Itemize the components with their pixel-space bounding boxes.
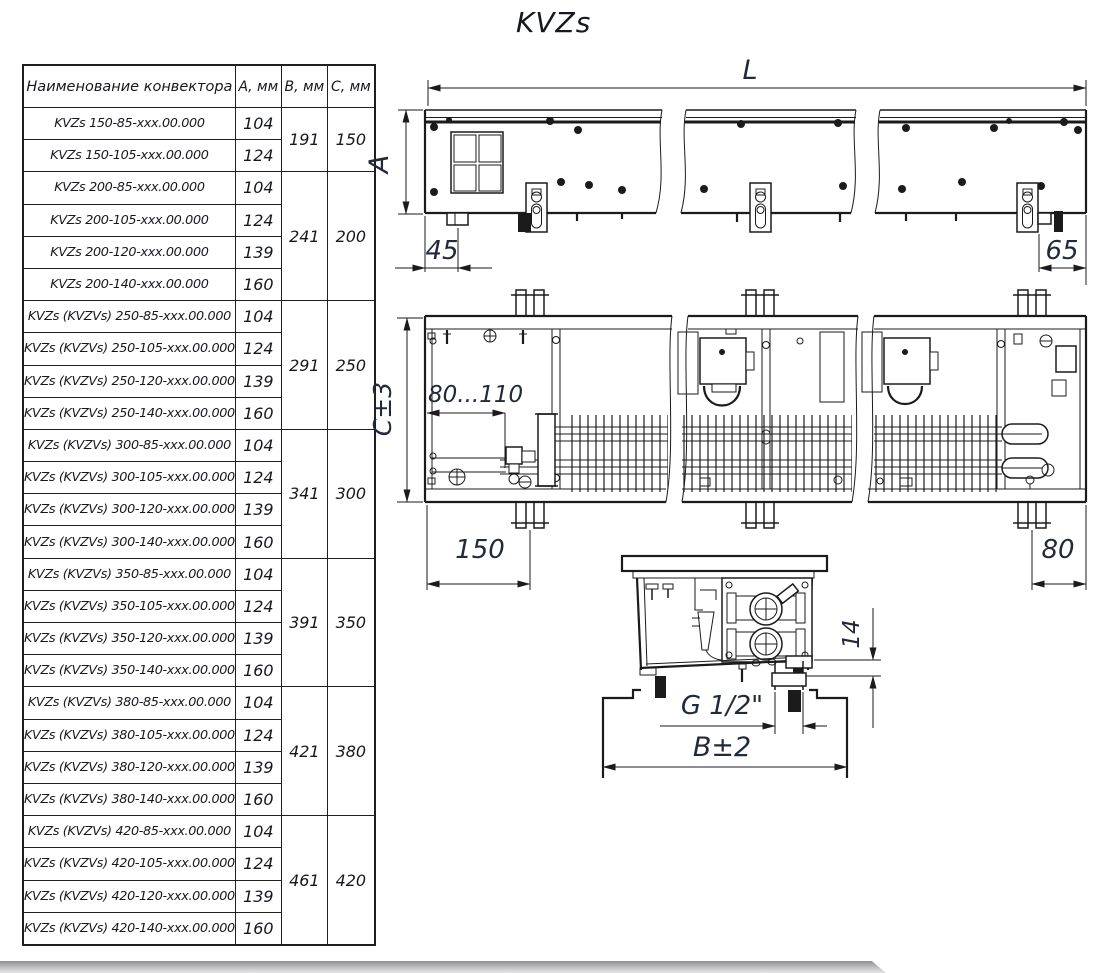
dim-14-label: 14 [839,619,865,648]
wall-bracket-3 [1017,183,1038,232]
front-view: L A [364,55,1086,285]
dim-65-label: 65 [1045,236,1078,266]
dim-14: 14 [806,608,881,728]
dim-150-label: 150 [455,535,505,565]
dim-80-label: 80 [1041,535,1074,565]
floor-recess-right [809,690,847,778]
front-segment-2 [681,110,856,232]
plan-view: С±3 [368,290,1086,590]
page-edge-shadow [0,961,886,973]
fan-grille [678,332,698,394]
dim-45-label: 45 [425,236,458,266]
technical-drawing: L A [0,0,1114,973]
dim-80-110-label: 80...110 [428,382,523,408]
dim-150: 150 [427,505,530,590]
wall-bracket-2 [750,183,771,232]
dim-G12: G 1/2" [660,691,827,734]
dim-A-label: A [364,155,395,175]
plan-segment-1: 80...110 [425,316,672,502]
drawing-sheet: KVZs Наименование конвектора А, мм В, мм… [0,0,1114,973]
mounting-clamps [511,290,1051,528]
front-segment-1 [425,110,662,232]
dim-B2: B±2 [603,732,847,767]
front-segment-3 [875,110,1086,232]
dim-L-label: L [742,55,757,86]
connection-panel [722,578,812,662]
fan-grille [820,332,844,402]
dim-A: A [364,110,423,214]
dim-L: L [428,55,1086,106]
fan-motor [700,338,754,406]
dim-C3-label: С±3 [368,382,397,436]
dim-45: 45 [395,216,492,272]
fan-motor [884,338,938,404]
dim-G12-label: G 1/2" [681,691,763,721]
dim-B2-label: B±2 [693,732,751,763]
side-view: 14 G 1/2" B±2 [603,556,881,778]
floor-recess-left [603,690,641,778]
dim-C3: С±3 [368,318,423,502]
plan-segment-3 [862,316,1086,502]
plan-segment-2 [678,316,858,502]
